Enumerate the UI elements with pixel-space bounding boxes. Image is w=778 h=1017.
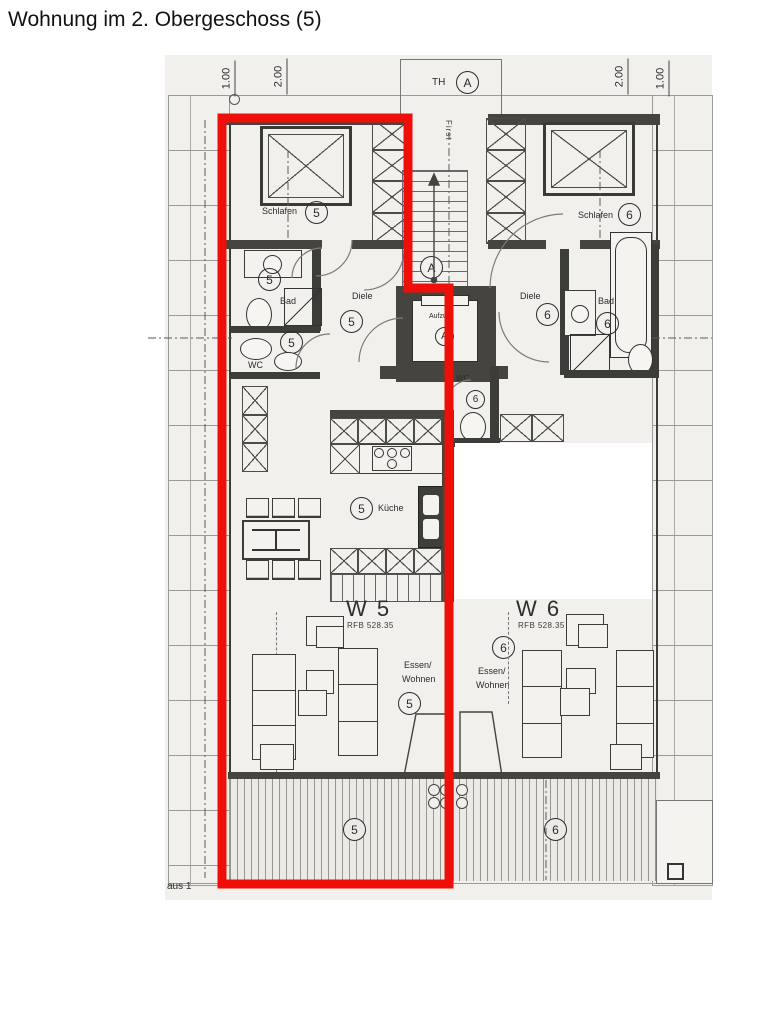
hatch-cell bbox=[486, 150, 526, 182]
cushion bbox=[339, 685, 377, 721]
hatch-cell bbox=[486, 118, 526, 150]
hatch-cell bbox=[500, 414, 532, 442]
hatch-cell bbox=[242, 386, 268, 415]
balcony-divider bbox=[452, 779, 454, 881]
side-table-5b bbox=[316, 626, 344, 648]
unit5-marker-hall: 5 bbox=[340, 310, 363, 333]
bathtub-6 bbox=[610, 232, 652, 358]
unit5-marker-bedroom: 5 bbox=[305, 201, 328, 224]
toilet-wc-5 bbox=[240, 338, 272, 360]
dining-chair bbox=[272, 498, 295, 518]
burner bbox=[374, 448, 384, 458]
elevator-door bbox=[421, 295, 469, 306]
hatch-cell bbox=[330, 444, 360, 474]
blank-area-unit6 bbox=[455, 443, 652, 599]
wall-wc5-bottom bbox=[230, 372, 320, 379]
elevator-label: Aufzug bbox=[429, 313, 451, 320]
planter bbox=[428, 784, 440, 796]
unit6-label: W 6 bbox=[516, 596, 561, 622]
unit5-marker-balcony: 5 bbox=[343, 818, 366, 841]
unit5-marker-kitchen: 5 bbox=[350, 497, 373, 520]
wall-below-elevator bbox=[380, 366, 508, 379]
wall-bedroom6-a bbox=[488, 240, 546, 249]
unit6-marker-wc: 6 bbox=[466, 390, 485, 409]
room-label-hall-5: Diele bbox=[352, 291, 373, 301]
wall-balcony-top bbox=[228, 772, 660, 779]
unit6-level-note: RFB 528.35 bbox=[518, 621, 565, 630]
washbasin-6 bbox=[564, 290, 596, 336]
sink-bowl bbox=[423, 495, 439, 515]
unit5-level-note: RFB 528.35 bbox=[347, 621, 394, 630]
cushion bbox=[617, 687, 653, 723]
hatch-cell bbox=[532, 414, 564, 442]
wall-bath5-bottom bbox=[230, 326, 320, 333]
planter bbox=[440, 797, 452, 809]
dimension-top-left-2: 2.00 bbox=[273, 59, 288, 95]
unit5-marker-wc: 5 bbox=[280, 331, 303, 354]
room-label-living-5b: Wohnen bbox=[402, 674, 435, 684]
page-title: Wohnung im 2. Obergeschoss (5) bbox=[8, 8, 322, 32]
sofa-5-right bbox=[338, 648, 378, 756]
dimension-top-right-2: 1.00 bbox=[655, 61, 670, 97]
burner bbox=[387, 459, 397, 469]
stair-hall-outline bbox=[400, 59, 502, 116]
wardrobe-unit6 bbox=[486, 118, 526, 244]
dimension-end-circle bbox=[229, 94, 240, 105]
stair-section-marker: A bbox=[420, 256, 443, 279]
room-label-living-5a: Essen/ bbox=[404, 660, 432, 670]
unit6-marker-bath: 6 bbox=[596, 312, 619, 335]
planter bbox=[428, 797, 440, 809]
shower-5 bbox=[284, 288, 322, 326]
cushion bbox=[253, 655, 295, 691]
sofa-6-left bbox=[522, 650, 562, 758]
room-label-bedroom-6: Schlafen bbox=[578, 210, 613, 220]
hatch-cell bbox=[386, 418, 414, 444]
dining-chair bbox=[298, 560, 321, 580]
hatch-cell bbox=[414, 418, 442, 444]
side-table-6b bbox=[578, 624, 608, 648]
plan-bottom-boundary bbox=[168, 883, 712, 884]
ridge-label: First bbox=[444, 120, 453, 141]
small-table-5 bbox=[260, 744, 294, 770]
skylight-cross bbox=[268, 134, 344, 198]
dining-table-5 bbox=[242, 520, 310, 560]
kitchen-cabinets-unit6 bbox=[500, 414, 564, 442]
room-label-bedroom-5: Schlafen bbox=[262, 206, 297, 216]
wall-wc6-right bbox=[490, 366, 499, 446]
skylight-unit5 bbox=[260, 126, 352, 206]
planter bbox=[456, 797, 468, 809]
planter bbox=[456, 784, 468, 796]
coffee-table-5b bbox=[298, 690, 327, 716]
unit5-marker-bath: 5 bbox=[258, 268, 281, 291]
hatch-cell bbox=[486, 181, 526, 213]
burner bbox=[400, 448, 410, 458]
shower-6 bbox=[570, 334, 610, 374]
roof-eave-strip-left bbox=[168, 95, 230, 886]
burner bbox=[387, 448, 397, 458]
elevator-cab: Aufzug A bbox=[412, 300, 478, 362]
balcony-unit5 bbox=[230, 779, 452, 881]
roof-terrace-box bbox=[656, 800, 713, 884]
hatch-cell bbox=[372, 118, 412, 150]
stove-5 bbox=[372, 446, 412, 471]
wall-bedroom5-a bbox=[226, 240, 322, 249]
table-detail-stem bbox=[275, 531, 277, 549]
basin bbox=[571, 305, 589, 323]
wall-kitchen5-top bbox=[330, 410, 446, 418]
cushion bbox=[617, 651, 653, 687]
cushion bbox=[339, 649, 377, 685]
hatch-cell bbox=[330, 548, 358, 574]
elevator-marker: A bbox=[435, 327, 454, 346]
floor-plan-page: Wohnung im 2. Obergeschoss (5) 1.00 2.00… bbox=[0, 0, 778, 1017]
room-label-hall-6: Diele bbox=[520, 291, 541, 301]
room-label-living-6a: Essen/ bbox=[478, 666, 506, 676]
room-label-wc-5: WC bbox=[248, 360, 263, 370]
kitchen-wall-cabinets-5 bbox=[330, 418, 442, 444]
hatch-cell bbox=[242, 415, 268, 444]
skylight-unit6 bbox=[543, 122, 635, 196]
dining-chair bbox=[272, 560, 295, 580]
unit5-label: W 5 bbox=[346, 596, 391, 622]
wall-unit6-right bbox=[656, 124, 658, 774]
unit6-marker-hall: 6 bbox=[536, 303, 559, 326]
wall-bath6-bottom bbox=[564, 370, 659, 378]
room-label-kitchen-5: Küche bbox=[378, 503, 404, 513]
skylight-cross bbox=[551, 130, 627, 188]
sink-bowl bbox=[423, 519, 439, 539]
post-marker bbox=[667, 863, 684, 880]
cushion bbox=[253, 691, 295, 727]
room-label-wc-6: WC bbox=[456, 374, 469, 383]
basin-wc-5 bbox=[274, 352, 302, 371]
room-label-living-6b: Wohnen bbox=[476, 680, 509, 690]
hatch-cell bbox=[242, 443, 268, 472]
dining-chair bbox=[298, 498, 321, 518]
hatch-cell bbox=[386, 548, 414, 574]
cushion bbox=[523, 687, 561, 723]
hatch-cell bbox=[330, 418, 358, 444]
wall-unit5-left bbox=[229, 124, 231, 774]
stair-hall-label: TH bbox=[432, 77, 445, 88]
dimension-top-left-1: 1.00 bbox=[221, 61, 236, 97]
coffee-table-6b bbox=[560, 688, 590, 716]
room-label-bath-6: Bad bbox=[598, 296, 614, 306]
dining-chair bbox=[246, 560, 269, 580]
unit6-marker-bedroom: 6 bbox=[618, 203, 641, 226]
centerline-living6 bbox=[508, 612, 509, 704]
bathtub-inner bbox=[615, 237, 647, 353]
dimension-top-right-1: 2.00 bbox=[614, 59, 629, 95]
sideboard-unit5 bbox=[242, 386, 268, 472]
unit5-marker-living: 5 bbox=[398, 692, 421, 715]
sofa-6-right bbox=[616, 650, 654, 758]
kitchen-base-cabinets-5 bbox=[330, 548, 442, 574]
footer-note: aus 1 bbox=[167, 881, 191, 892]
table-detail bbox=[252, 529, 300, 551]
cushion bbox=[523, 651, 561, 687]
hatch-cell bbox=[414, 548, 442, 574]
unit6-marker-balcony: 6 bbox=[544, 818, 567, 841]
section-marker-top: A bbox=[456, 71, 479, 94]
hatch-cell bbox=[358, 418, 386, 444]
unit6-marker-living: 6 bbox=[492, 636, 515, 659]
dining-chair bbox=[246, 498, 269, 518]
small-table-6 bbox=[610, 744, 642, 770]
hatch-cell bbox=[358, 548, 386, 574]
wall-bedroom5-b bbox=[352, 240, 412, 249]
planter bbox=[440, 784, 452, 796]
roof-eave-strip-right bbox=[652, 95, 713, 886]
